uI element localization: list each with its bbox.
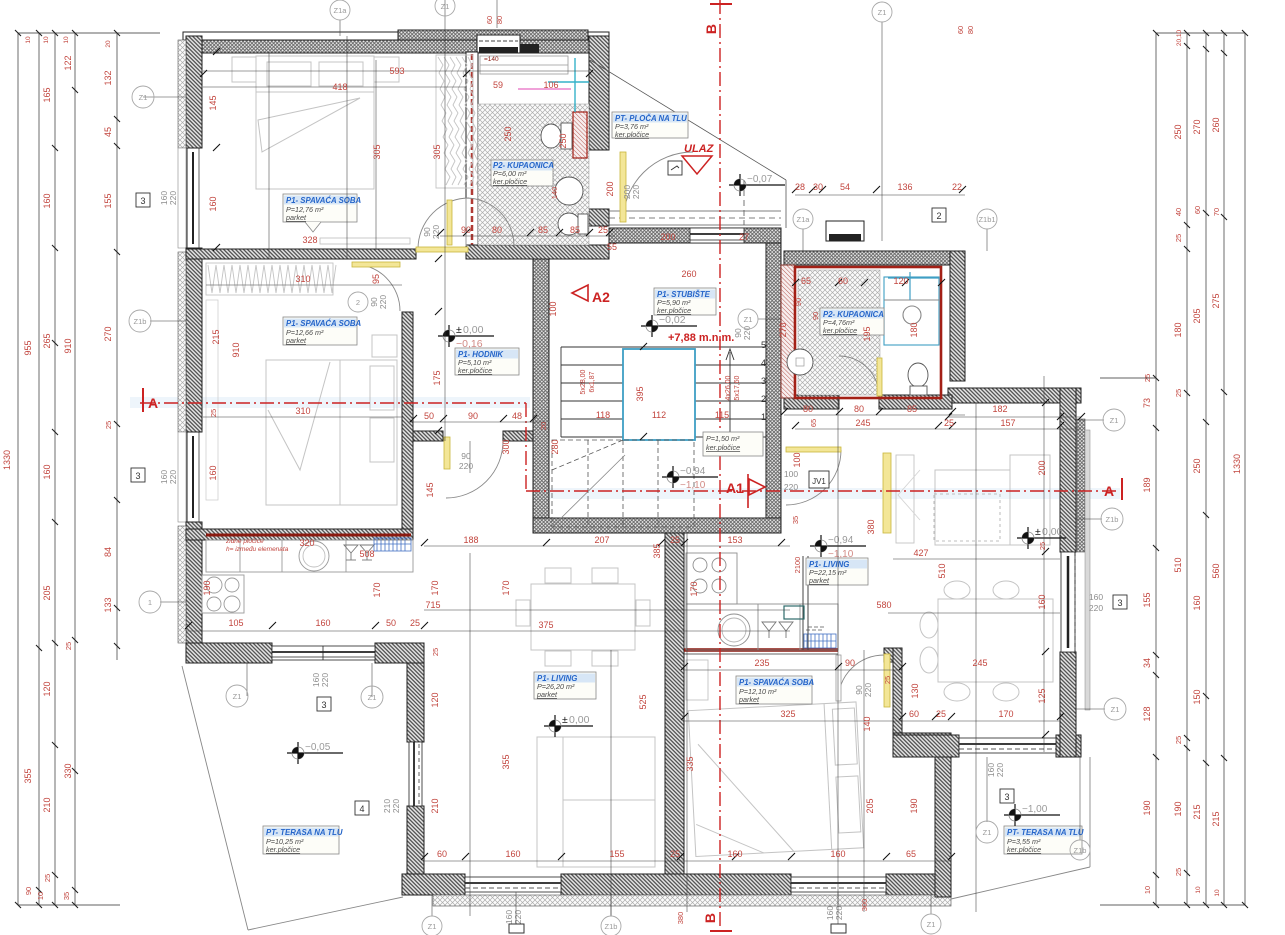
svg-text:2: 2 (356, 298, 360, 307)
svg-text:85: 85 (570, 225, 580, 235)
svg-text:−1,10: −1,10 (828, 549, 854, 560)
svg-text:ker.pločice: ker.pločice (458, 366, 492, 375)
svg-text:525: 525 (638, 694, 648, 709)
svg-text:335: 335 (685, 756, 695, 771)
svg-text:Z1b: Z1b (605, 922, 618, 931)
svg-text:220: 220 (995, 763, 1005, 777)
svg-text:10: 10 (43, 36, 50, 44)
svg-text:65: 65 (801, 276, 811, 286)
svg-text:A: A (1104, 483, 1114, 499)
svg-text:220: 220 (431, 225, 441, 239)
svg-text:280: 280 (550, 439, 560, 454)
svg-text:Z1: Z1 (1111, 705, 1120, 714)
svg-text:3: 3 (321, 700, 326, 710)
svg-text:50: 50 (386, 618, 396, 628)
svg-text:510: 510 (937, 563, 947, 578)
svg-text:35: 35 (62, 892, 71, 900)
svg-text:4: 4 (761, 358, 766, 368)
svg-text:B: B (703, 24, 719, 34)
svg-text:PT- TERASA NA TLU: PT- TERASA NA TLU (266, 828, 343, 837)
svg-text:220: 220 (378, 295, 388, 309)
svg-text:580: 580 (876, 600, 891, 610)
svg-text:200: 200 (605, 181, 615, 196)
svg-text:910: 910 (63, 338, 73, 353)
svg-text:Z1: Z1 (878, 8, 887, 17)
svg-text:145: 145 (425, 482, 435, 497)
svg-text:parket: parket (285, 336, 307, 345)
svg-text:128: 128 (1142, 706, 1152, 721)
svg-text:118: 118 (596, 410, 610, 420)
svg-text:160: 160 (1089, 592, 1103, 602)
svg-text:207: 207 (594, 535, 609, 545)
svg-text:90: 90 (461, 451, 471, 461)
svg-text:235: 235 (754, 658, 769, 668)
svg-text:25: 25 (1174, 736, 1183, 744)
svg-text:10: 10 (63, 36, 70, 44)
svg-text:60: 60 (956, 26, 965, 34)
svg-text:zidne pločice: zidne pločice (225, 538, 264, 545)
svg-text:160: 160 (1037, 594, 1047, 609)
svg-text:−0,02: −0,02 (659, 314, 686, 326)
svg-text:parket: parket (738, 695, 760, 704)
svg-text:Z1b: Z1b (1074, 846, 1087, 855)
svg-text:90: 90 (461, 225, 471, 235)
svg-text:35: 35 (791, 516, 800, 524)
svg-text:210: 210 (430, 798, 440, 813)
svg-text:170: 170 (689, 581, 699, 596)
svg-text:parket: parket (285, 213, 307, 222)
svg-text:136: 136 (897, 182, 912, 192)
svg-text:153: 153 (727, 535, 742, 545)
svg-text:220: 220 (1089, 603, 1103, 613)
svg-text:120: 120 (42, 681, 52, 696)
svg-text:Z1: Z1 (744, 315, 753, 324)
svg-text:Z1b1: Z1b1 (978, 215, 995, 224)
svg-text:84: 84 (103, 547, 113, 557)
svg-text:220: 220 (631, 185, 641, 199)
svg-text:10: 10 (36, 892, 45, 900)
svg-text:115: 115 (715, 410, 729, 420)
svg-text:3: 3 (1004, 792, 1009, 802)
svg-text:220: 220 (459, 461, 473, 471)
svg-text:160: 160 (1192, 595, 1202, 610)
svg-text:Z1a: Z1a (334, 6, 348, 15)
svg-text:Z1: Z1 (428, 922, 437, 931)
svg-text:195: 195 (862, 326, 872, 341)
svg-text:Z1: Z1 (233, 692, 242, 701)
svg-text:+7,88 m.n.m.: +7,88 m.n.m. (668, 332, 734, 344)
svg-text:−0,94: −0,94 (828, 535, 854, 546)
svg-text:85: 85 (538, 225, 548, 235)
svg-text:320: 320 (299, 538, 314, 548)
svg-text:60: 60 (838, 276, 848, 286)
svg-text:220: 220 (784, 482, 798, 492)
svg-text:560: 560 (1211, 563, 1221, 578)
svg-text:155: 155 (103, 193, 113, 208)
svg-text:265: 265 (42, 333, 52, 348)
svg-text:25: 25 (64, 642, 73, 650)
svg-text:260: 260 (1211, 117, 1221, 132)
svg-text:105: 105 (228, 618, 243, 628)
svg-text:Z1: Z1 (927, 920, 936, 929)
svg-text:Z1: Z1 (139, 93, 148, 102)
svg-text:48: 48 (512, 411, 522, 421)
svg-text:188: 188 (463, 535, 478, 545)
svg-text:200: 200 (660, 232, 675, 242)
svg-text:80: 80 (495, 16, 504, 24)
svg-text:±: ± (562, 714, 568, 726)
svg-text:90: 90 (24, 887, 33, 895)
svg-text:ker.pločice: ker.pločice (1007, 845, 1041, 854)
svg-text:65: 65 (906, 849, 916, 859)
svg-text:25: 25 (936, 709, 946, 719)
svg-text:73: 73 (1142, 398, 1152, 408)
svg-text:25: 25 (1174, 868, 1183, 876)
svg-text:200: 200 (1037, 460, 1047, 475)
svg-text:−0,07: −0,07 (747, 174, 773, 185)
svg-text:3: 3 (761, 376, 766, 386)
svg-text:220: 220 (168, 470, 178, 484)
svg-text:215: 215 (211, 329, 221, 344)
svg-text:25: 25 (43, 874, 52, 882)
svg-text:140: 140 (862, 716, 872, 731)
svg-text:220: 220 (834, 906, 844, 920)
svg-text:180: 180 (909, 322, 919, 337)
svg-text:130: 130 (910, 683, 920, 698)
svg-text:375: 375 (538, 620, 553, 630)
svg-text:310: 310 (295, 274, 310, 284)
svg-text:90: 90 (468, 411, 478, 421)
svg-text:160: 160 (208, 196, 218, 211)
svg-text:250: 250 (1173, 124, 1183, 139)
svg-text:510: 510 (1173, 557, 1183, 572)
svg-text:Z1: Z1 (1110, 416, 1119, 425)
svg-text:328: 328 (302, 235, 317, 245)
svg-text:155: 155 (609, 849, 624, 859)
svg-text:300: 300 (501, 439, 511, 454)
svg-text:2: 2 (936, 211, 941, 221)
svg-text:160: 160 (727, 849, 742, 859)
svg-text:250: 250 (1192, 458, 1202, 473)
svg-text:−0,16: −0,16 (456, 338, 483, 350)
svg-text:10: 10 (1143, 886, 1152, 894)
svg-text:106: 106 (543, 80, 558, 90)
svg-text:28: 28 (795, 182, 805, 192)
svg-text:P1- SPAVAĆA SOBA: P1- SPAVAĆA SOBA (286, 319, 361, 328)
svg-text:120: 120 (430, 692, 440, 707)
svg-text:122: 122 (63, 55, 73, 70)
svg-text:54: 54 (840, 182, 850, 192)
svg-text:305: 305 (372, 144, 382, 159)
svg-text:245: 245 (855, 418, 870, 428)
svg-text:25: 25 (104, 421, 113, 429)
svg-text:90: 90 (794, 298, 803, 306)
svg-text:95: 95 (371, 274, 381, 284)
svg-text:160: 160 (42, 193, 52, 208)
svg-text:22: 22 (952, 182, 962, 192)
svg-text:170: 170 (501, 580, 511, 595)
svg-text:220: 220 (320, 673, 330, 687)
svg-text:190: 190 (202, 580, 212, 595)
svg-text:380: 380 (866, 519, 876, 534)
svg-text:20: 20 (105, 40, 112, 48)
svg-text:−1,10: −1,10 (680, 480, 706, 491)
svg-text:160: 160 (830, 849, 845, 859)
svg-text:5: 5 (761, 340, 766, 350)
svg-text:25: 25 (1174, 389, 1183, 397)
svg-text:100: 100 (792, 452, 802, 467)
svg-text:80: 80 (854, 404, 864, 414)
svg-text:300: 300 (860, 899, 869, 912)
svg-text:160: 160 (208, 465, 218, 480)
svg-text:330: 330 (63, 763, 73, 778)
svg-text:=140: =140 (484, 56, 499, 63)
svg-text:0,00: 0,00 (463, 324, 484, 336)
svg-text:25: 25 (431, 648, 440, 656)
svg-text:27: 27 (739, 232, 749, 242)
svg-text:ker.pločice: ker.pločice (823, 326, 857, 335)
svg-text:120: 120 (893, 276, 908, 286)
svg-text:910: 910 (231, 342, 241, 357)
svg-text:170: 170 (998, 709, 1013, 719)
svg-text:2: 2 (761, 394, 766, 404)
svg-text:508: 508 (359, 549, 374, 559)
svg-text:170: 170 (430, 580, 440, 595)
svg-text:270: 270 (1192, 119, 1202, 134)
svg-text:25: 25 (209, 409, 218, 417)
svg-text:270: 270 (103, 326, 113, 341)
svg-text:3: 3 (140, 196, 145, 206)
svg-text:A: A (148, 395, 158, 411)
svg-text:P1- SPAVAĆA SOBA: P1- SPAVAĆA SOBA (286, 196, 361, 205)
svg-text:80: 80 (966, 26, 975, 34)
svg-text:−1,00: −1,00 (1022, 804, 1048, 815)
svg-text:1330: 1330 (2, 450, 12, 470)
svg-text:70: 70 (1212, 208, 1221, 216)
svg-text:B: B (702, 913, 718, 923)
svg-text:270: 270 (778, 322, 788, 337)
svg-text:80: 80 (492, 225, 502, 235)
svg-text:65: 65 (809, 419, 818, 427)
svg-text:Z1: Z1 (983, 828, 992, 837)
svg-text:25: 25 (1143, 374, 1152, 382)
svg-text:180: 180 (1173, 322, 1183, 337)
svg-text:100: 100 (784, 469, 798, 479)
svg-text:125: 125 (1037, 688, 1047, 703)
svg-text:155: 155 (1142, 592, 1152, 607)
svg-text:ker.pločice: ker.pločice (493, 177, 527, 186)
svg-text:60: 60 (909, 709, 919, 719)
svg-text:25: 25 (883, 676, 892, 684)
svg-text:215: 215 (1192, 804, 1202, 819)
svg-text:145: 145 (208, 95, 218, 110)
svg-text:210: 210 (42, 797, 52, 812)
svg-text:10: 10 (25, 36, 32, 44)
svg-text:parket: parket (808, 576, 830, 585)
svg-text:5x28,00: 5x28,00 (580, 369, 587, 394)
svg-text:Z1b: Z1b (1106, 515, 1119, 524)
svg-text:205: 205 (42, 585, 52, 600)
svg-text:260: 260 (681, 269, 696, 279)
svg-text:205: 205 (1192, 308, 1202, 323)
svg-text:190: 190 (909, 798, 919, 813)
svg-text:−0,94: −0,94 (680, 466, 706, 477)
svg-text:175: 175 (432, 370, 442, 385)
svg-text:190: 190 (1173, 801, 1183, 816)
svg-text:45: 45 (103, 127, 113, 137)
svg-text:385: 385 (652, 543, 662, 558)
svg-text:150: 150 (1192, 689, 1202, 704)
svg-text:215: 215 (1211, 811, 1221, 826)
svg-text:112: 112 (652, 410, 666, 420)
svg-text:355: 355 (23, 768, 33, 783)
svg-text:182: 182 (992, 404, 1007, 414)
svg-text:275: 275 (1211, 293, 1221, 308)
svg-text:220: 220 (168, 191, 178, 205)
svg-text:715: 715 (425, 600, 440, 610)
svg-text:55: 55 (607, 242, 617, 252)
svg-text:h= između elemenata: h= između elemenata (226, 546, 289, 553)
svg-text:1330: 1330 (1232, 454, 1242, 474)
svg-text:170: 170 (372, 582, 382, 597)
svg-text:2100: 2100 (793, 557, 802, 574)
svg-text:A1: A1 (726, 480, 744, 496)
svg-text:25: 25 (598, 225, 608, 235)
svg-text:1: 1 (761, 412, 766, 422)
svg-text:380: 380 (676, 912, 685, 925)
svg-text:40: 40 (1174, 208, 1183, 216)
svg-text:34: 34 (1142, 658, 1152, 668)
svg-text:90: 90 (845, 658, 855, 668)
svg-text:395: 395 (635, 386, 645, 401)
svg-text:50: 50 (424, 411, 434, 421)
svg-text:325: 325 (780, 709, 795, 719)
svg-text:1: 1 (148, 598, 152, 607)
svg-text:25: 25 (1038, 542, 1047, 550)
svg-text:100: 100 (548, 301, 558, 316)
svg-text:10: 10 (1195, 886, 1202, 894)
svg-text:220: 220 (863, 683, 873, 697)
svg-text:189: 189 (1142, 477, 1152, 492)
svg-text:3: 3 (1117, 598, 1122, 608)
svg-text:Z1a: Z1a (797, 215, 811, 224)
svg-text:60: 60 (1193, 206, 1202, 214)
svg-text:220: 220 (513, 910, 523, 924)
svg-text:250: 250 (558, 133, 568, 148)
svg-text:4: 4 (359, 804, 364, 814)
svg-text:parket: parket (536, 690, 558, 699)
svg-text:355: 355 (501, 754, 511, 769)
svg-text:20,10: 20,10 (1176, 29, 1183, 46)
svg-text:±: ± (456, 324, 462, 336)
svg-text:30: 30 (813, 182, 823, 192)
svg-text:ULAZ: ULAZ (684, 143, 715, 155)
svg-text:60: 60 (437, 849, 447, 859)
svg-text:5x17,60: 5x17,60 (734, 375, 741, 400)
svg-text:205: 205 (865, 798, 875, 813)
svg-text:418: 418 (332, 82, 347, 92)
svg-text:A2: A2 (592, 289, 610, 305)
svg-text:220: 220 (391, 799, 401, 813)
svg-text:593: 593 (389, 66, 404, 76)
svg-text:160: 160 (42, 464, 52, 479)
svg-text:90: 90 (811, 312, 820, 320)
svg-text:0,00: 0,00 (1042, 526, 1063, 538)
svg-text:10: 10 (1214, 889, 1221, 897)
svg-text:25: 25 (944, 418, 954, 428)
svg-text:P1- SPAVAĆA SOBA: P1- SPAVAĆA SOBA (739, 678, 814, 687)
svg-text:25: 25 (670, 849, 680, 859)
svg-text:20: 20 (539, 422, 548, 430)
svg-text:190: 190 (1142, 800, 1152, 815)
svg-text:4x26,00: 4x26,00 (725, 375, 732, 400)
svg-text:132: 132 (103, 70, 113, 85)
svg-text:310: 310 (295, 406, 310, 416)
svg-text:ker.pločice: ker.pločice (706, 443, 740, 452)
svg-text:955: 955 (23, 340, 33, 355)
svg-text:250: 250 (503, 126, 513, 141)
svg-text:0,00: 0,00 (569, 714, 590, 726)
svg-text:P=1,50 m²: P=1,50 m² (706, 434, 740, 443)
svg-text:PT- TERASA NA TLU: PT- TERASA NA TLU (1007, 828, 1084, 837)
svg-text:JV1: JV1 (812, 477, 826, 486)
svg-text:427: 427 (913, 548, 928, 558)
svg-text:ker.pločice: ker.pločice (615, 130, 649, 139)
svg-text:3: 3 (135, 471, 140, 481)
svg-text:Z1: Z1 (441, 2, 450, 11)
svg-text:305: 305 (432, 144, 442, 159)
svg-text:25: 25 (1174, 234, 1183, 242)
svg-text:133: 133 (103, 597, 113, 612)
svg-text:6x1,87: 6x1,87 (589, 371, 596, 392)
svg-text:−0,05: −0,05 (305, 742, 331, 753)
svg-text:25: 25 (410, 618, 420, 628)
svg-text:157: 157 (1000, 418, 1015, 428)
svg-text:245: 245 (972, 658, 987, 668)
svg-text:85: 85 (907, 404, 917, 414)
svg-text:25: 25 (670, 535, 680, 545)
svg-text:±: ± (1035, 526, 1041, 538)
svg-text:Z1: Z1 (368, 693, 377, 702)
svg-text:59: 59 (493, 80, 503, 90)
svg-text:140: 140 (550, 187, 559, 200)
svg-text:60: 60 (485, 16, 494, 24)
svg-text:ker.pločice: ker.pločice (266, 845, 300, 854)
svg-text:80: 80 (803, 404, 813, 414)
svg-text:165: 165 (42, 87, 52, 102)
svg-text:160: 160 (505, 849, 520, 859)
svg-text:Z1b: Z1b (134, 317, 147, 326)
svg-text:160: 160 (315, 618, 330, 628)
